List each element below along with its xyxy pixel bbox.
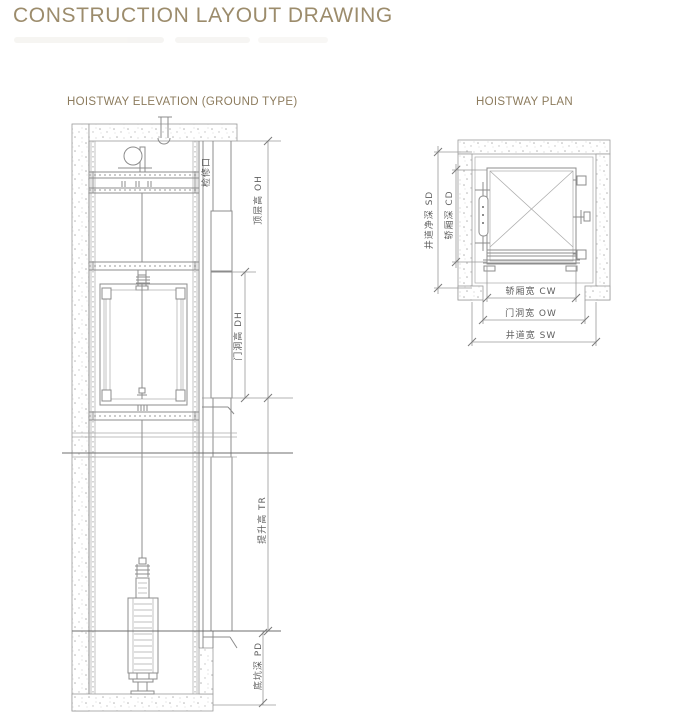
car-guide-shoe <box>102 390 111 401</box>
pit-floor <box>72 694 213 711</box>
pit-depth-dimension-label: 底坑深 PD <box>252 642 264 690</box>
car-guide-shoe <box>176 288 185 299</box>
top-door-opening <box>211 272 232 398</box>
plan-wall-bottom-right <box>585 286 610 300</box>
shaft-depth-dimension-label: 井道净深 SD <box>423 191 435 250</box>
right-wall-lower <box>199 648 213 694</box>
car-outer-wall <box>100 284 187 405</box>
buffer <box>131 679 154 694</box>
top-slab <box>89 124 237 141</box>
beam-below-car <box>89 412 199 420</box>
plan-wall-top <box>458 140 610 154</box>
construction-layout-drawing: 检修口 顶层高 OH 门洞高 DH 提升高 TR 底坑深 PD <box>0 0 678 728</box>
left-wall <box>72 124 89 711</box>
plan-car-inner <box>490 171 573 261</box>
hoistway-plan-drawing: 井道净深 SD 轿厢深 CD 轿厢宽 CW 门洞宽 OW 井道宽 SW <box>423 140 610 346</box>
faded-print-artifact <box>14 37 328 43</box>
plan-wall-left <box>458 154 472 300</box>
door-height-dimension-label: 门洞高 DH <box>232 311 244 361</box>
car-guide-shoe <box>176 390 185 401</box>
car-depth-dimension-label: 轿厢深 CD <box>443 190 455 239</box>
counterweight-fillers <box>134 604 152 670</box>
anchor-bolts <box>122 181 151 187</box>
inspection-opening <box>211 211 232 271</box>
door-width-dimension-label: 门洞宽 OW <box>505 307 557 319</box>
car-rope-hitch <box>137 388 147 411</box>
car-uprights <box>104 292 183 397</box>
plan-wall-right <box>596 154 610 300</box>
plan-guide-rail <box>475 182 490 251</box>
counterweight-shoe <box>149 673 157 679</box>
shaft-lines <box>89 141 231 694</box>
plan-car <box>483 168 580 271</box>
traction-machine <box>118 147 152 187</box>
car <box>100 284 187 411</box>
car-inner-wall <box>106 290 181 399</box>
landing-levels <box>72 407 281 648</box>
rope-hitch-upper <box>136 270 150 290</box>
counterweight-hitch <box>135 558 150 598</box>
crosshead-beam <box>89 262 199 270</box>
bottom-door-opening <box>211 457 232 631</box>
sill-bracket <box>484 266 495 271</box>
traction-pulley <box>124 147 142 165</box>
shaft-width-dimension-label: 井道宽 SW <box>506 329 556 341</box>
inspection-port-label: 检修口 <box>200 157 212 187</box>
floor-slab-lines <box>62 433 293 457</box>
counterweight-shoe <box>129 673 137 679</box>
travel-height-dimension-label: 提升高 TR <box>256 496 268 544</box>
machine-beam <box>89 172 199 193</box>
hoistway-elevation-drawing: 检修口 顶层高 OH 门洞高 DH 提升高 TR 底坑深 PD <box>62 117 293 711</box>
counterweight <box>128 558 158 679</box>
car-width-dimension-label: 轿厢宽 CW <box>505 285 556 297</box>
sill-bracket <box>566 266 577 271</box>
overhead-dimension-label: 顶层高 OH <box>252 175 264 225</box>
counterweight-frame <box>128 598 158 673</box>
car-guide-shoe <box>102 288 111 299</box>
